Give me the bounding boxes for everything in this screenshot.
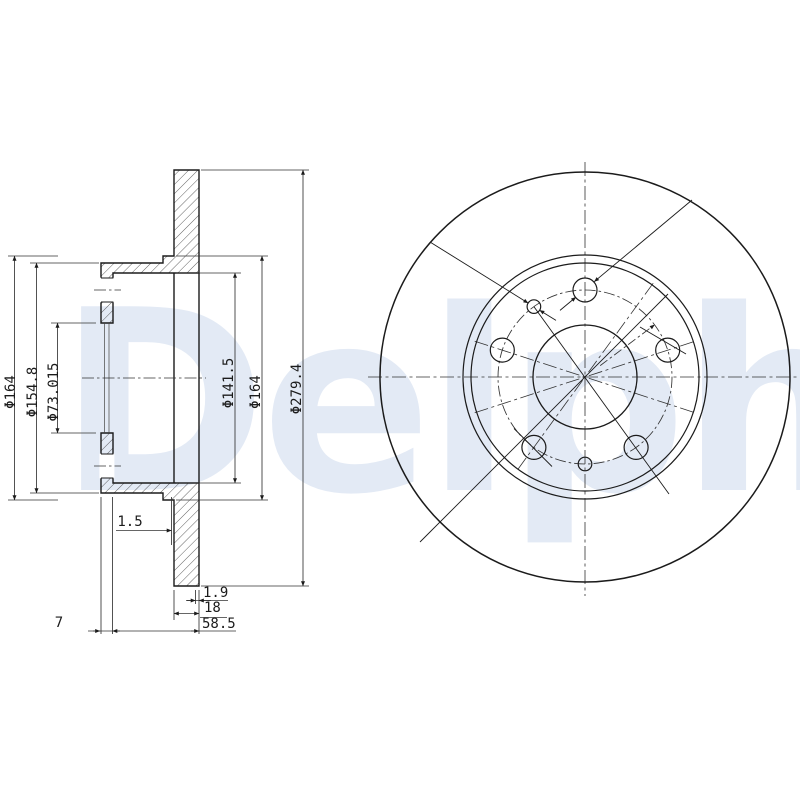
- dim-label-hat-id: Φ141.5: [221, 358, 237, 409]
- dim-label-shoulder: Φ164: [248, 375, 264, 409]
- dim-label-thickness: 18: [204, 600, 221, 616]
- dim-label-hat-od: Φ154.8: [25, 367, 41, 418]
- dim-label-height: 58.5: [202, 616, 236, 632]
- brake-disc-drawing: Delphi: [0, 0, 800, 800]
- delphi-watermark: Delphi: [58, 257, 800, 550]
- dim-label-flange-od: Φ164: [3, 375, 19, 409]
- dim-label-rim-step: 1.9: [203, 585, 228, 601]
- dim-label-hat-step: 1.5: [117, 514, 142, 530]
- technical-drawing-page: Delphi: [0, 0, 800, 800]
- dim-label-bore: Φ73.015: [46, 362, 62, 421]
- dim-label-disc-od: Φ279.4: [289, 364, 305, 415]
- dim-label-flange-thickness: 7: [55, 615, 63, 631]
